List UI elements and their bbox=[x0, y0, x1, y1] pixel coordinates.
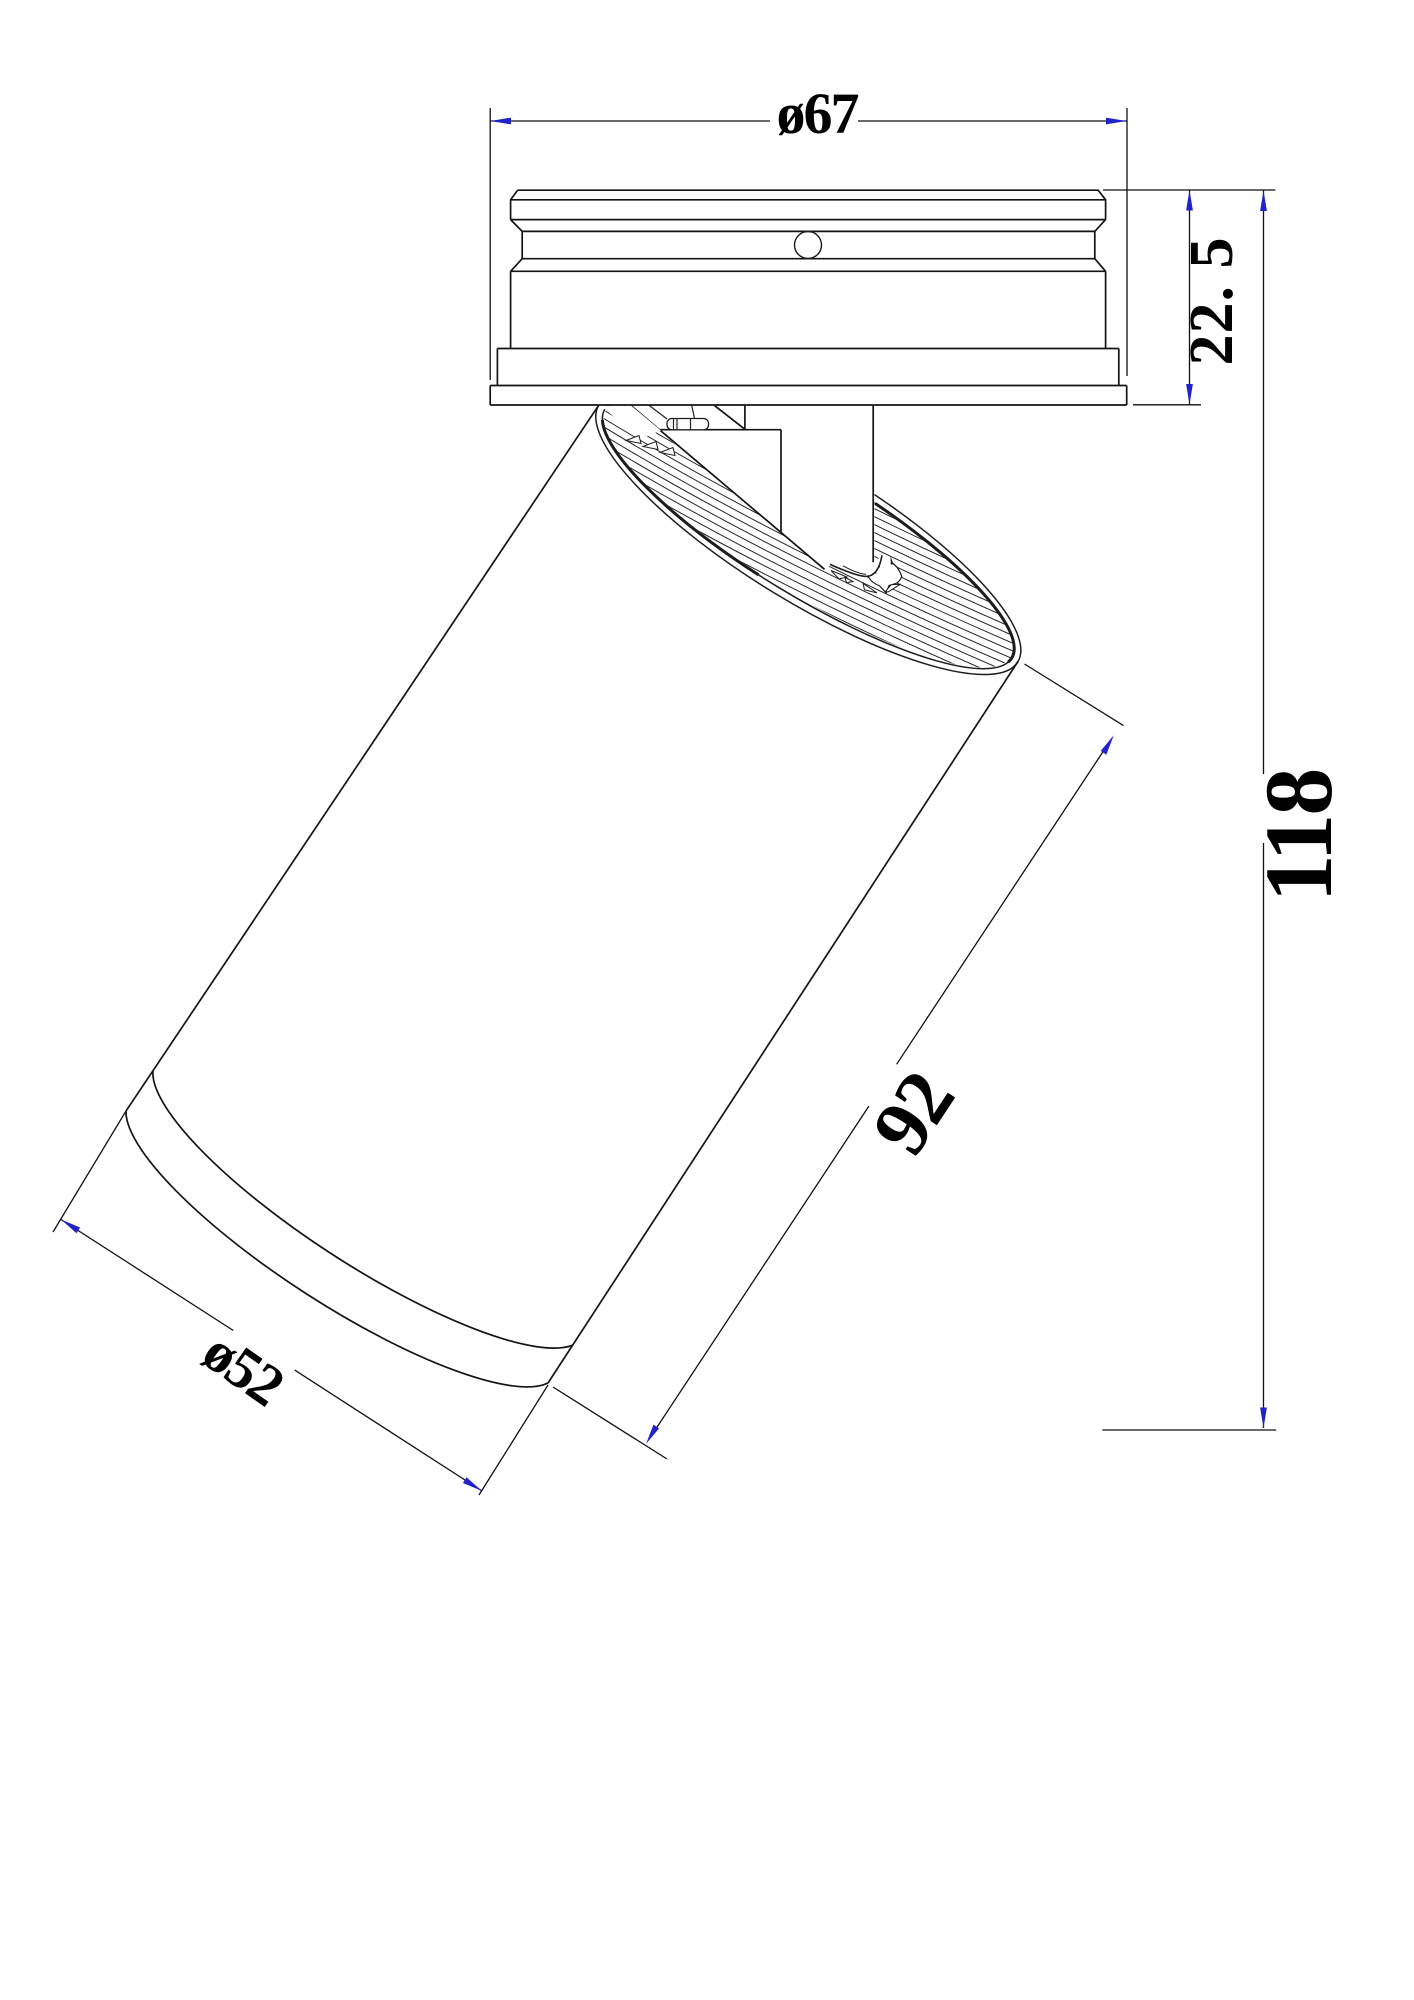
svg-text:22. 5: 22. 5 bbox=[1178, 237, 1246, 366]
svg-text:ø67: ø67 bbox=[777, 81, 859, 146]
svg-text:118: 118 bbox=[1245, 770, 1352, 903]
